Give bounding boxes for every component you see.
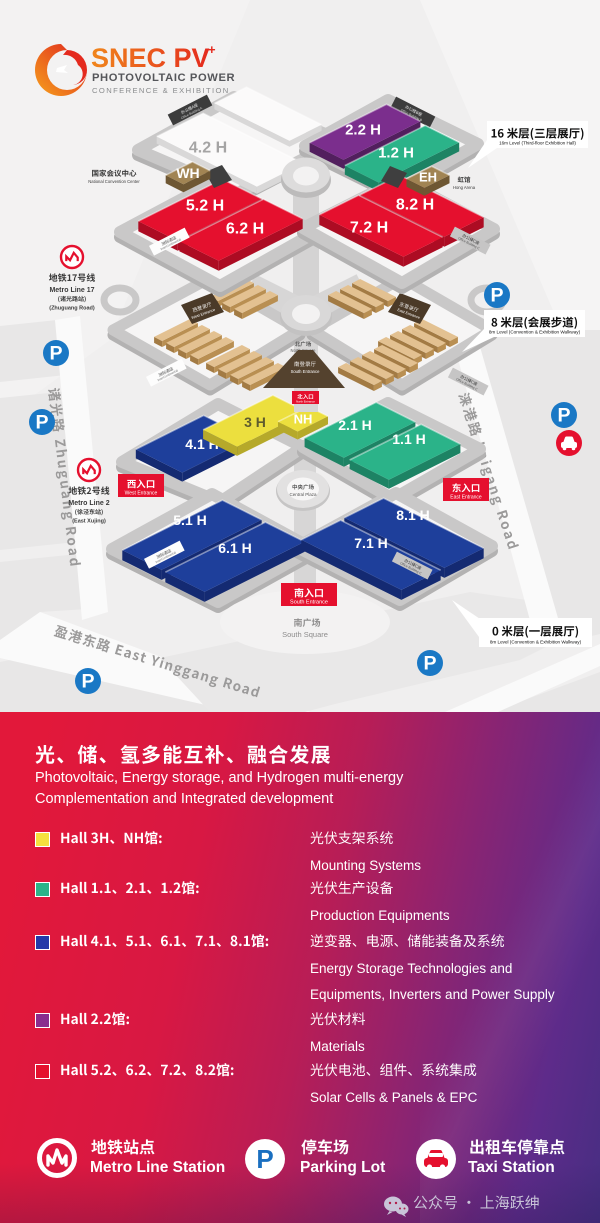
svg-text:P: P <box>490 285 503 307</box>
svg-text:+: + <box>208 42 216 57</box>
svg-text:South Entrance: South Entrance <box>291 369 321 374</box>
svg-text:5.2 H: 5.2 H <box>186 198 224 215</box>
svg-text:South Square: South Square <box>282 630 328 639</box>
svg-text:North Entrance: North Entrance <box>296 400 315 404</box>
svg-text:P: P <box>35 412 48 434</box>
svg-text:7.1 H: 7.1 H <box>354 535 387 551</box>
svg-text:Metro Line 17: Metro Line 17 <box>49 287 94 294</box>
svg-text:Central Plaza: Central Plaza <box>289 492 317 497</box>
svg-text:P: P <box>557 405 570 427</box>
svg-text:National Convention Center: National Convention Center <box>88 179 140 184</box>
svg-text:EH: EH <box>419 170 437 185</box>
svg-text:(Zhuguang Road): (Zhuguang Road) <box>49 305 95 311</box>
svg-text:2.1 H: 2.1 H <box>338 417 371 433</box>
svg-text:8.1 H: 8.1 H <box>396 507 429 523</box>
svg-text:5.1 H: 5.1 H <box>173 512 206 528</box>
svg-text:SNEC PV: SNEC PV <box>91 43 210 73</box>
svg-text:NH: NH <box>294 412 313 427</box>
svg-text:8m Level (Convention & Exhibit: 8m Level (Convention & Exhibition Walkwa… <box>490 639 582 644</box>
svg-text:7.2 H: 7.2 H <box>350 220 388 237</box>
svg-text:East Entrance: East Entrance <box>450 494 482 500</box>
svg-text:6.2 H: 6.2 H <box>226 221 264 238</box>
svg-text:South Entrance: South Entrance <box>290 600 328 606</box>
svg-text:8.2 H: 8.2 H <box>396 197 434 214</box>
svg-text:3 H: 3 H <box>244 414 266 430</box>
svg-text:Metro Line 2: Metro Line 2 <box>68 500 109 507</box>
svg-text:P: P <box>423 653 436 675</box>
svg-text:WH: WH <box>176 165 199 181</box>
svg-text:CONFERENCE & EXHIBITION: CONFERENCE & EXHIBITION <box>92 86 230 95</box>
svg-text:1.2 H: 1.2 H <box>378 144 414 161</box>
svg-text:West Entrance: West Entrance <box>125 490 158 496</box>
svg-text:16m Level (Third-floor Exhibit: 16m Level (Third-floor Exhibition Hall) <box>499 141 576 146</box>
svg-text:2.2 H: 2.2 H <box>345 121 381 138</box>
svg-text:1.1 H: 1.1 H <box>392 431 425 447</box>
svg-text:4.2 H: 4.2 H <box>189 140 227 157</box>
svg-text:(East Xujing): (East Xujing) <box>72 518 106 524</box>
svg-text:PHOTOVOLTAIC POWER: PHOTOVOLTAIC POWER <box>92 72 235 84</box>
svg-text:8m Level (Convention & Exhibit: 8m Level (Convention & Exhibition Walkwa… <box>489 330 581 335</box>
svg-text:P: P <box>81 671 94 693</box>
svg-text:P: P <box>49 343 62 365</box>
svg-text:Hong Arena: Hong Arena <box>453 185 476 190</box>
svg-text:6.1 H: 6.1 H <box>218 540 251 556</box>
